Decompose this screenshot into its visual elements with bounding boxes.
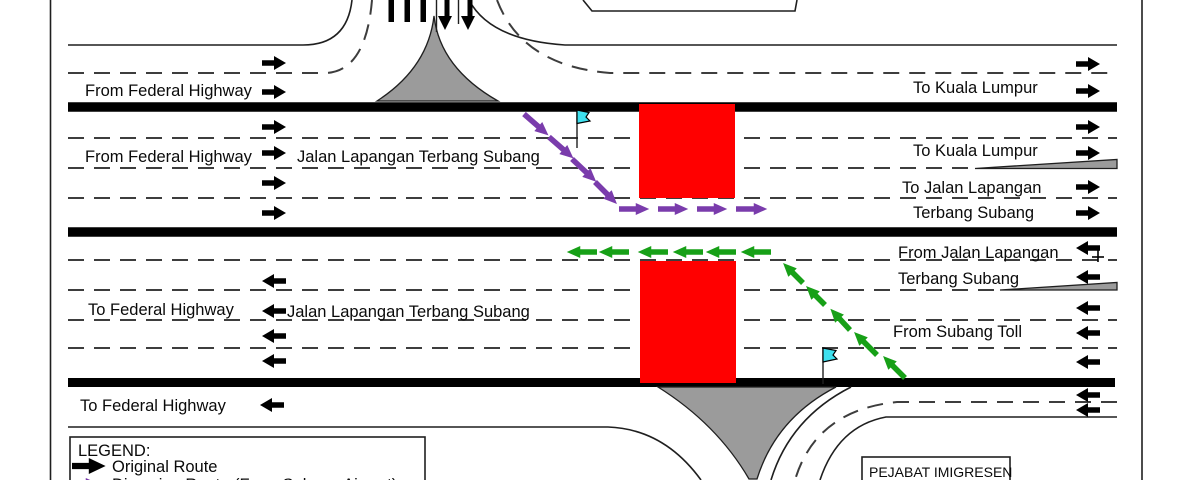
label-road-c-left: To Federal Highway — [88, 301, 235, 319]
original-route-arrow — [1076, 120, 1100, 134]
original-route-arrow — [260, 398, 284, 412]
label-road-c-right3: From Subang Toll — [893, 323, 1022, 341]
diversion-route-green — [578, 252, 905, 378]
original-route-arrow — [1076, 84, 1100, 98]
original-route-arrow — [1076, 388, 1100, 402]
original-route-arrow — [262, 274, 286, 288]
original-route-arrow — [1076, 180, 1100, 194]
label-road-b-center: Jalan Lapangan Terbang Subang — [297, 148, 540, 166]
up-route-arrow — [405, 0, 411, 22]
label-road-d-left: To Federal Highway — [80, 397, 227, 415]
original-route-arrow — [1076, 57, 1100, 71]
label-road-b-left: From Federal Highway — [85, 148, 253, 166]
down-route-arrowhead — [461, 16, 475, 30]
original-route-arrow — [1076, 241, 1100, 255]
flag-icon — [823, 348, 837, 362]
original-route-arrow — [262, 354, 286, 368]
legend-item-original-route: Original Route — [112, 458, 217, 476]
label-road-c-center: Jalan Lapangan Terbang Subang — [287, 303, 530, 321]
flag-icon — [577, 110, 590, 124]
original-route-arrow — [262, 329, 286, 343]
road-closure-block-eastbound — [639, 104, 735, 198]
diagram-canvas: From Federal Highway To Kuala Lumpur Fro… — [0, 0, 1200, 480]
down-route-arrowhead — [438, 16, 452, 30]
original-route-arrow — [1076, 355, 1100, 369]
gore-island-bottom — [658, 387, 836, 479]
original-route-arrow — [262, 304, 286, 318]
original-route-arrow — [1076, 301, 1100, 315]
lane-taper-wedge-b — [975, 160, 1117, 169]
top-label-box — [583, 0, 797, 11]
flag-marker-top — [577, 110, 590, 148]
original-route-arrow — [1076, 206, 1100, 220]
legend-item-diversion-route: Diversion Route (From Subang Airport) — [112, 476, 397, 480]
original-route-arrow — [262, 56, 286, 70]
original-route-arrow — [262, 120, 286, 134]
gore-island-top — [377, 16, 498, 101]
up-route-arrow — [389, 0, 395, 22]
down-route-arrow — [468, 0, 473, 17]
road-diversion-diagram: From Federal Highway To Kuala Lumpur Fro… — [0, 0, 1200, 480]
up-route-arrow — [421, 0, 427, 22]
label-road-b-right1: To Kuala Lumpur — [913, 142, 1038, 160]
original-route-arrow — [1076, 403, 1100, 417]
original-route-arrow — [262, 176, 286, 190]
original-route-arrow — [1076, 146, 1100, 160]
original-route-arrow — [1076, 270, 1100, 284]
label-road-a-right: To Kuala Lumpur — [913, 79, 1038, 97]
original-route-arrow — [262, 85, 286, 99]
label-road-a-left: From Federal Highway — [85, 82, 253, 100]
label-road-b-right3: Terbang Subang — [913, 204, 1034, 222]
label-road-b-right2: To Jalan Lapangan — [902, 179, 1041, 197]
road-closure-block-westbound — [640, 261, 736, 383]
building-pejabat-imigresen: PEJABAT IMIGRESEN — [862, 457, 1012, 480]
legend: LEGEND: Original Route Diversion Route (… — [70, 437, 425, 480]
original-route-arrow — [262, 206, 286, 220]
building-label: PEJABAT IMIGRESEN — [869, 464, 1012, 480]
down-route-arrow — [445, 0, 450, 17]
original-route-arrow — [1076, 326, 1100, 340]
label-road-c-right2: Terbang Subang — [898, 270, 1019, 288]
original-route-arrow — [262, 146, 286, 160]
label-road-c-right1: From Jalan Lapangan — [898, 244, 1059, 262]
